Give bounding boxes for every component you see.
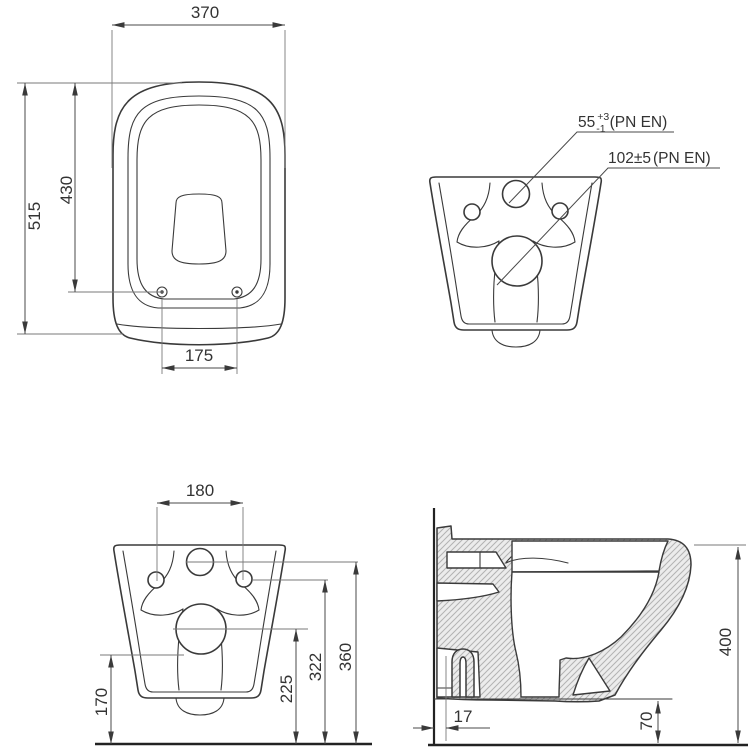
rear-view-dimensioned: 180 170 225 322 360 [92,481,372,744]
drawing-svg: 370 515 430 175 55+3-1(PN EN) [0,0,750,750]
rear-view-annotated: 55+3-1(PN EN) 102±5(PN EN) [430,111,720,347]
outlet-label: 102±5(PN EN) [608,150,711,167]
dim-side-wall-gap-label: 17 [454,707,473,726]
technical-drawing-sheet: 370 515 430 175 55+3-1(PN EN) [0,0,750,750]
dim-plan-width-label: 370 [191,3,219,22]
dim-plan-seat-depth-label: 430 [57,176,76,204]
dim-rear-outlet-center: 225 [277,629,296,744]
plan-body-outline [113,82,285,345]
dim-rear-hole-spacing-label: 180 [186,481,214,500]
dim-side-floor-clearance: 70 [637,701,658,743]
dim-plan-depth-label: 515 [25,202,44,230]
dim-rear-holes-height-label: 322 [306,653,325,681]
inlet-duct [447,552,506,568]
dim-rear-outlet-bottom: 170 [92,655,111,744]
dim-side-floor-clearance-label: 70 [637,712,656,731]
dim-side-height-label: 400 [716,628,735,656]
rear-body-lower [114,545,286,715]
dim-side-height: 400 [694,545,746,743]
dim-rear-inlet-height: 360 [336,562,356,744]
dim-rear-holes-height: 322 [306,580,325,744]
dim-rear-inlet-height-label: 360 [336,643,355,671]
inlet-label: 55+3-1(PN EN) [578,111,667,135]
plan-view: 370 515 430 175 [17,3,285,374]
bowl-far-wall [512,541,668,572]
side-section-view: 17 70 400 [413,508,748,745]
dim-rear-outlet-center-label: 225 [277,675,296,703]
dim-rear-outlet-bottom-label: 170 [92,688,111,716]
dim-plan-hole-spacing-label: 175 [185,346,213,365]
